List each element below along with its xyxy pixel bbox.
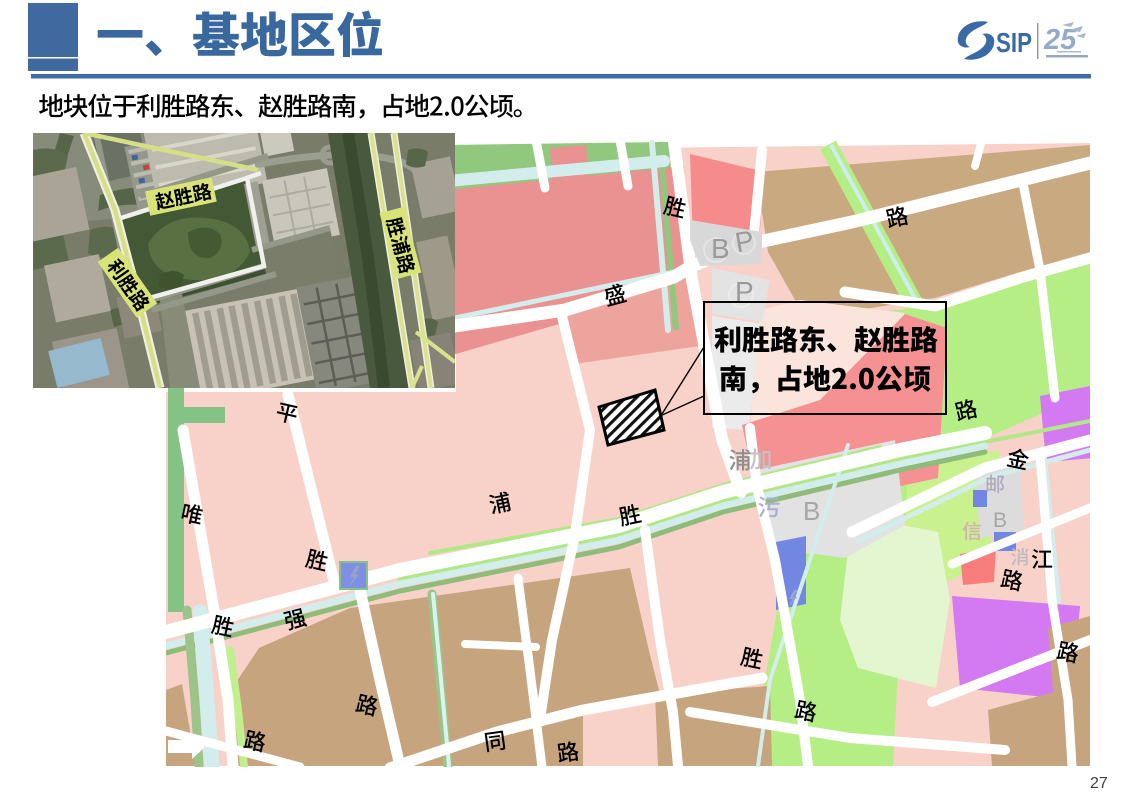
svg-text:27: 27 <box>1090 775 1108 792</box>
svg-text:B: B <box>993 509 1007 532</box>
svg-text:B: B <box>803 496 820 526</box>
svg-text:SIP: SIP <box>996 27 1032 58</box>
svg-text:B: B <box>711 233 730 264</box>
